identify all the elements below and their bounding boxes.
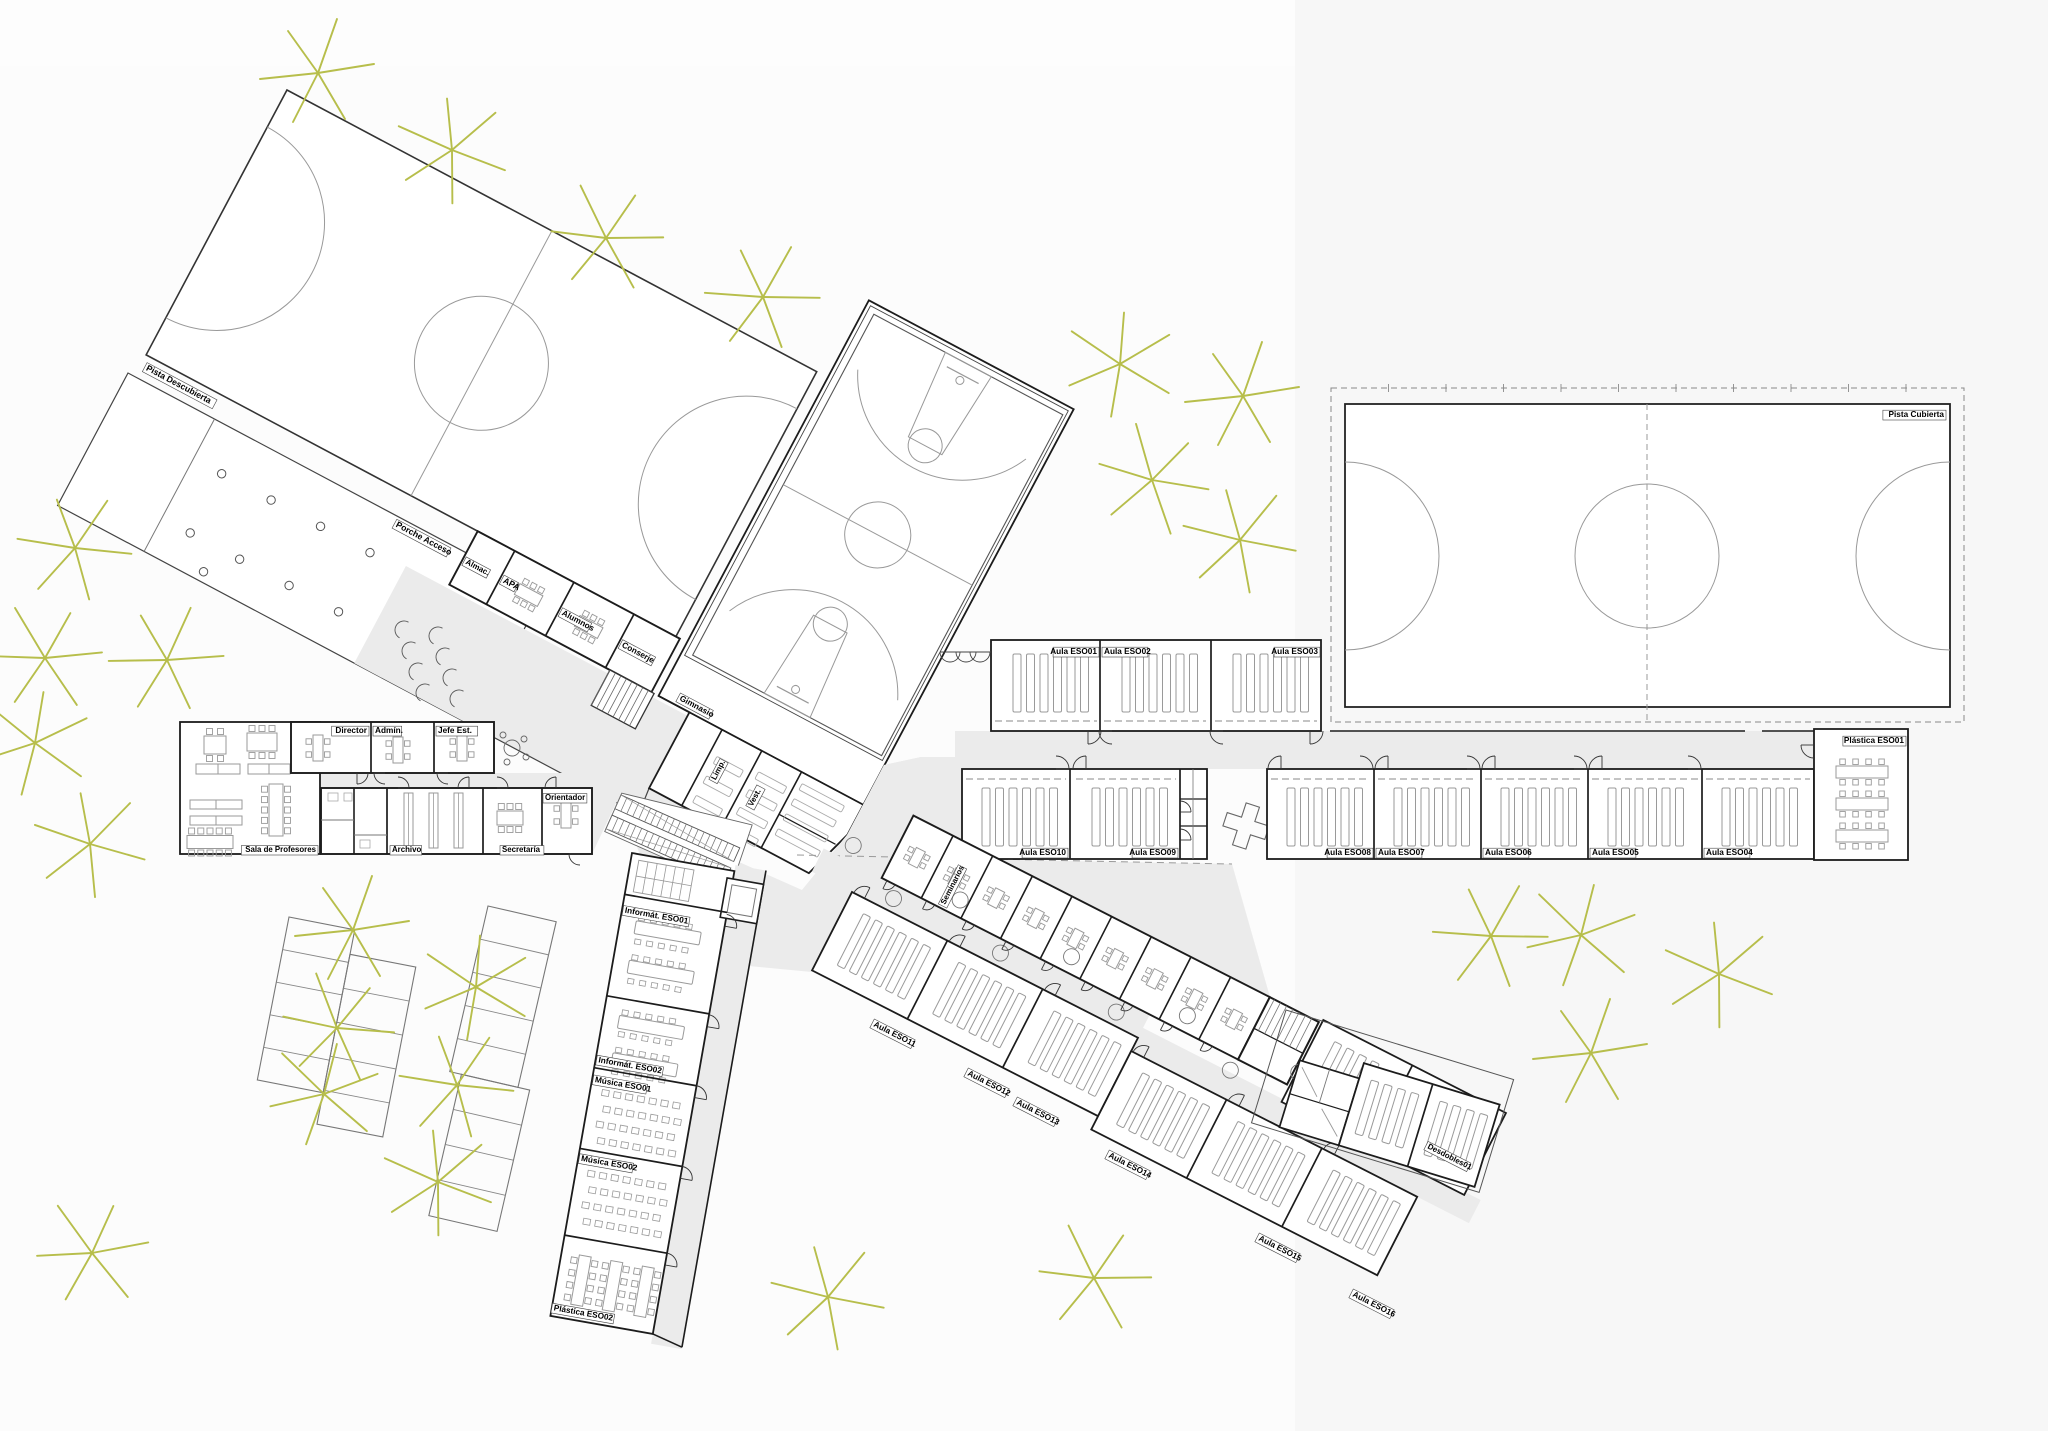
svg-text:Archivo: Archivo xyxy=(392,845,421,854)
svg-text:Aula ESO05: Aula ESO05 xyxy=(1592,848,1639,857)
svg-text:Jefe Est.: Jefe Est. xyxy=(438,726,472,735)
svg-text:Aula ESO08: Aula ESO08 xyxy=(1324,848,1371,857)
svg-text:Aula ESO06: Aula ESO06 xyxy=(1485,848,1532,857)
svg-text:Director: Director xyxy=(335,726,367,735)
svg-text:Aula ESO01: Aula ESO01 xyxy=(1050,647,1097,656)
svg-text:Secretaría: Secretaría xyxy=(502,845,541,854)
svg-text:Pista Cubierta: Pista Cubierta xyxy=(1889,410,1945,419)
svg-text:Sala de Profesores: Sala de Profesores xyxy=(245,845,316,854)
svg-text:Aula ESO02: Aula ESO02 xyxy=(1104,647,1151,656)
svg-text:Plástica ESO01: Plástica ESO01 xyxy=(1844,736,1904,745)
svg-text:Aula ESO04: Aula ESO04 xyxy=(1706,848,1753,857)
svg-text:Aula ESO03: Aula ESO03 xyxy=(1271,647,1318,656)
svg-text:Admín.: Admín. xyxy=(375,726,403,735)
svg-text:Orientador: Orientador xyxy=(545,793,585,802)
svg-text:Aula ESO09: Aula ESO09 xyxy=(1129,848,1176,857)
svg-text:Aula ESO10: Aula ESO10 xyxy=(1019,848,1066,857)
svg-text:Aula ESO07: Aula ESO07 xyxy=(1378,848,1425,857)
